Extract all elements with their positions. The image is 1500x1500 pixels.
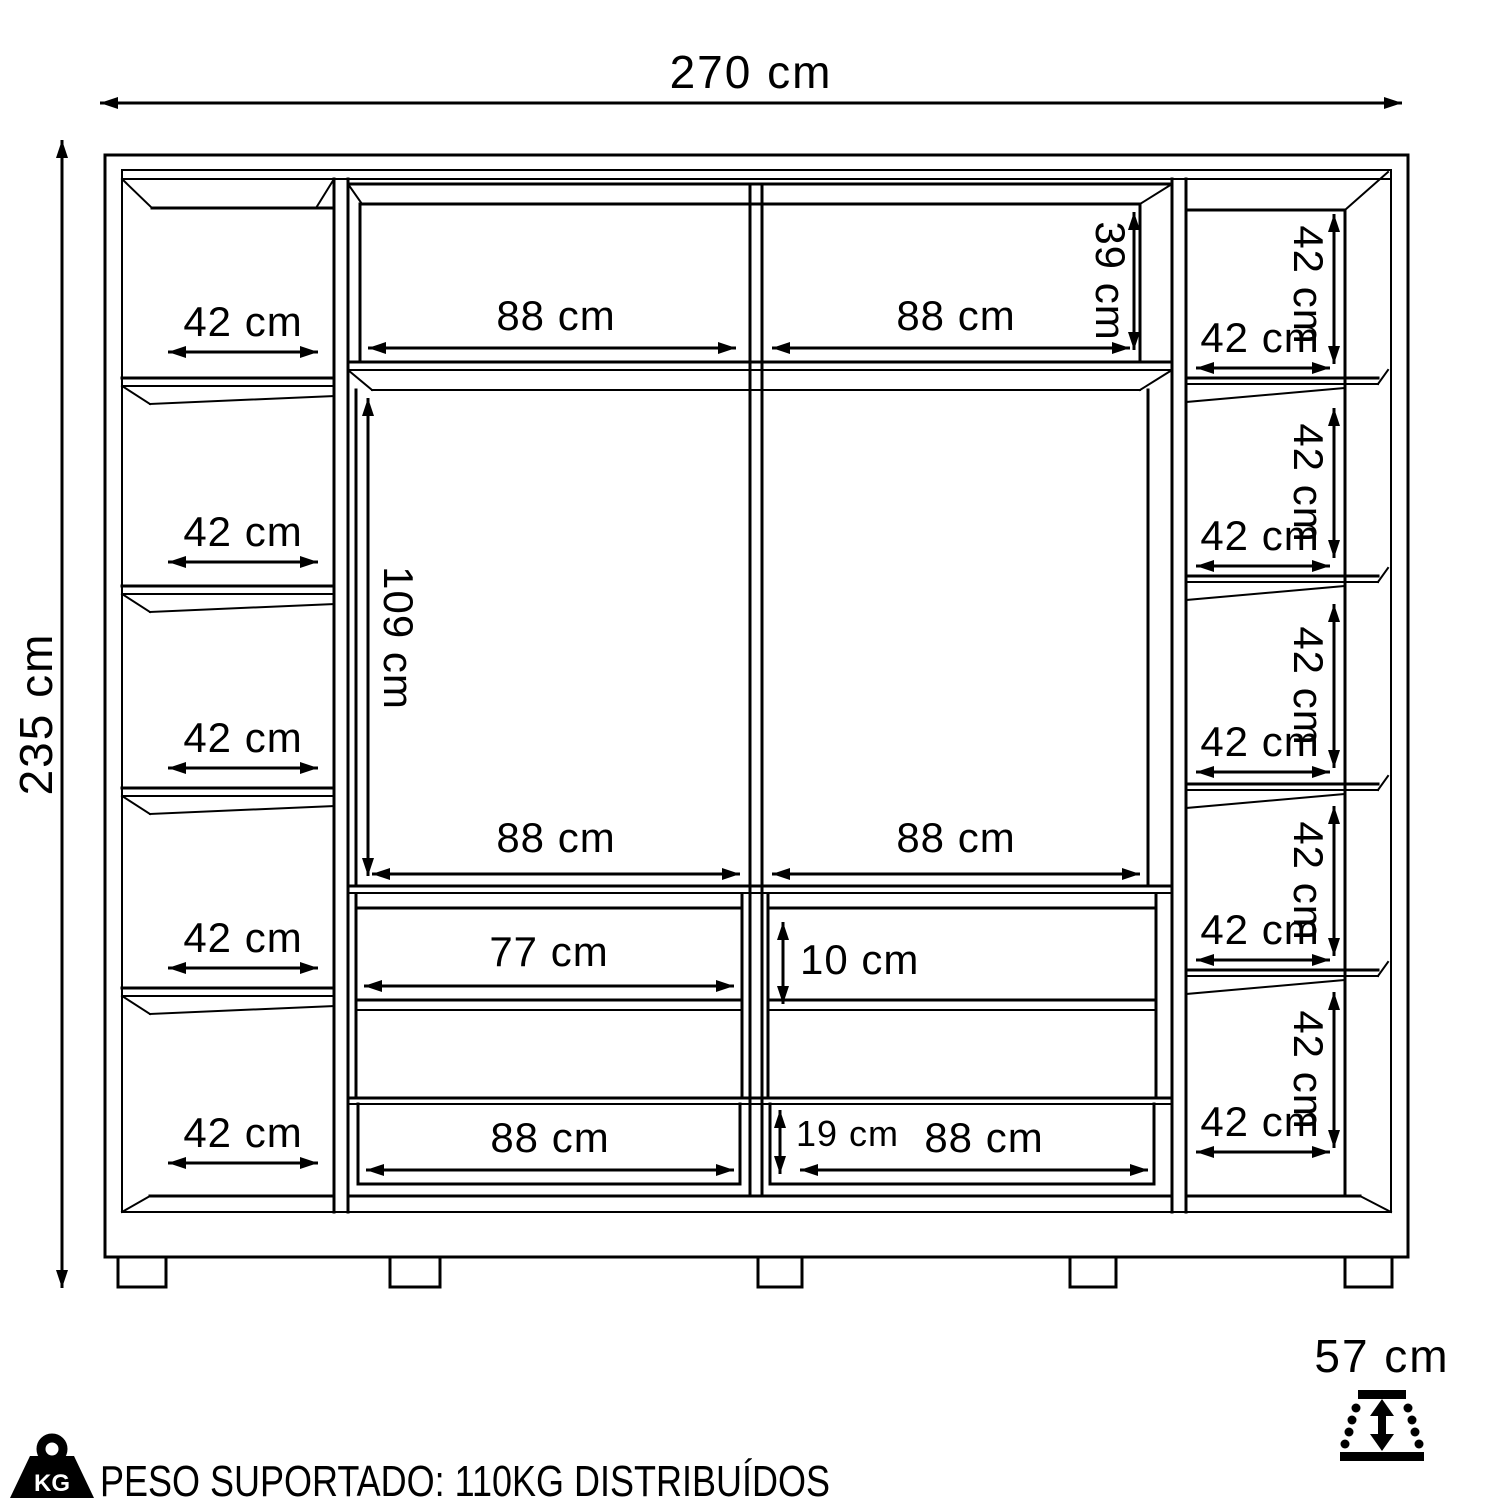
drawer-width: 77 cm [489, 928, 608, 975]
bottom-row-right-width: 88 cm [924, 1114, 1043, 1161]
cabinet-foot [1345, 1257, 1392, 1287]
dimension-annotations: 270 cm 235 cm 42 cm 42 cm 42 cm 42 cm 42… [10, 46, 1402, 1288]
right-cell-5-width: 42 cm [1200, 1098, 1319, 1145]
overall-height-label: 235 cm [10, 633, 62, 796]
cabinet-foot [1070, 1257, 1116, 1287]
left-cell-2-width: 42 cm [183, 508, 302, 555]
center-compartments [348, 184, 1172, 1196]
left-cell-5-width: 42 cm [183, 1109, 302, 1156]
top-row-height: 39 cm [1087, 221, 1134, 340]
right-cell-2-width: 42 cm [1200, 512, 1319, 559]
overall-width-label: 270 cm [670, 46, 833, 98]
right-cell-3-width: 42 cm [1200, 718, 1319, 765]
wardrobe-dimension-diagram: 270 cm 235 cm 42 cm 42 cm 42 cm 42 cm 42… [0, 0, 1500, 1500]
bottom-row-gap-height: 19 cm [796, 1113, 899, 1154]
kg-badge-label: KG [34, 1470, 70, 1497]
footer-weight-note: KG PESO SUPORTADO: 110KG DISTRIBUÍDOS [10, 1438, 830, 1500]
top-row-left-width: 88 cm [496, 292, 615, 339]
main-row-left-width: 88 cm [496, 814, 615, 861]
plinth-and-feet [118, 1257, 1392, 1287]
cabinet-foot [758, 1257, 802, 1287]
depth-label: 57 cm [1314, 1330, 1449, 1382]
weight-note-text: PESO SUPORTADO: 110KG DISTRIBUÍDOS [100, 1457, 830, 1500]
right-cell-1-width: 42 cm [1200, 314, 1319, 361]
left-cell-3-width: 42 cm [183, 714, 302, 761]
right-cell-4-width: 42 cm [1200, 906, 1319, 953]
top-row-right-width: 88 cm [896, 292, 1015, 339]
kg-weight-icon: KG [10, 1438, 94, 1498]
left-cell-4-width: 42 cm [183, 914, 302, 961]
main-row-right-width: 88 cm [896, 814, 1015, 861]
depth-indicator: 57 cm [1314, 1330, 1449, 1461]
bottom-row-left-width: 88 cm [490, 1114, 609, 1161]
drawer-front-height: 10 cm [800, 936, 919, 983]
depth-double-arrow-icon [1340, 1390, 1424, 1461]
cabinet-foot [390, 1257, 440, 1287]
cabinet-foot [118, 1257, 166, 1287]
left-cell-1-width: 42 cm [183, 298, 302, 345]
main-row-height: 109 cm [375, 566, 422, 710]
technical-drawing-canvas: 270 cm 235 cm 42 cm 42 cm 42 cm 42 cm 42… [0, 0, 1500, 1500]
